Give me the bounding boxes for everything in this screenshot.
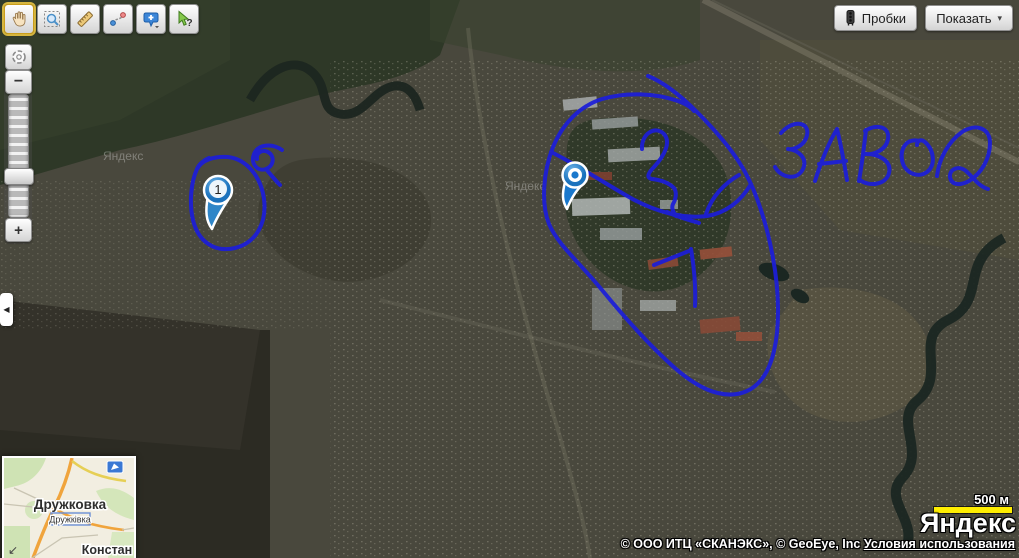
svg-text:?: ?: [186, 18, 192, 29]
map-canvas[interactable]: Яндекс Яндекс: [0, 0, 1019, 558]
traffic-button[interactable]: Пробки: [834, 5, 917, 31]
ruler-tool-button[interactable]: [70, 4, 100, 34]
zoom-slider-handle[interactable]: [4, 168, 34, 185]
hand-icon: [9, 9, 29, 29]
zoom-out-button[interactable]: −: [5, 70, 32, 94]
satellite-terrain: Яндекс Яндекс: [0, 0, 1019, 558]
terms-of-use-link[interactable]: Условия использования: [864, 537, 1015, 551]
balloon-plus-icon: [141, 9, 161, 29]
chevron-down-icon: ▾: [997, 13, 1002, 24]
overview-globe-button[interactable]: [5, 44, 32, 70]
map-watermark: Яндекс: [103, 149, 143, 163]
zoom-in-button[interactable]: +: [5, 218, 32, 242]
map-viewport: Яндекс Яндекс: [0, 0, 1019, 558]
route-icon: [108, 9, 128, 29]
sidebar-collapse-tab[interactable]: ◀: [0, 293, 13, 326]
inspect-tool-button[interactable]: ?: [169, 4, 199, 34]
minimap-partial-city: Констан: [82, 543, 132, 557]
ruler-icon: [75, 9, 95, 29]
scale-label: 500 м: [974, 492, 1009, 507]
minimap-city-name: Дружковка: [34, 497, 107, 512]
show-button-label: Показать: [936, 11, 991, 26]
zoom-slider-track[interactable]: [8, 94, 29, 218]
globe-icon: [10, 48, 28, 66]
cursor-help-icon: ?: [174, 9, 194, 29]
minimap-resize-handle[interactable]: ↙: [8, 543, 18, 557]
zoom-select-icon: [42, 9, 62, 29]
traffic-button-label: Пробки: [862, 11, 906, 26]
map-watermark: Яндекс: [505, 179, 545, 193]
attribution: © ООО ИТЦ «СКАНЭКС», © GeoEye, Inc Услов…: [621, 537, 1015, 551]
minimap-pan-button[interactable]: [107, 461, 123, 473]
zoom-select-tool-button[interactable]: [37, 4, 67, 34]
add-placemark-tool-button[interactable]: [136, 4, 166, 34]
overview-minimap[interactable]: Дружковка Дружківка Констан ↙: [2, 456, 136, 558]
attribution-copyright: © ООО ИТЦ «СКАНЭКС», © GeoEye, Inc: [621, 537, 861, 551]
traffic-light-icon: [845, 10, 856, 26]
placemark-1-label: 1: [214, 182, 221, 197]
pan-tool-button[interactable]: [4, 4, 34, 34]
show-menu-button[interactable]: Показать ▾: [925, 5, 1013, 31]
minimap-city-name-uk: Дружківка: [49, 515, 90, 525]
route-tool-button[interactable]: [103, 4, 133, 34]
yandex-logo[interactable]: Яндекс: [920, 508, 1016, 539]
